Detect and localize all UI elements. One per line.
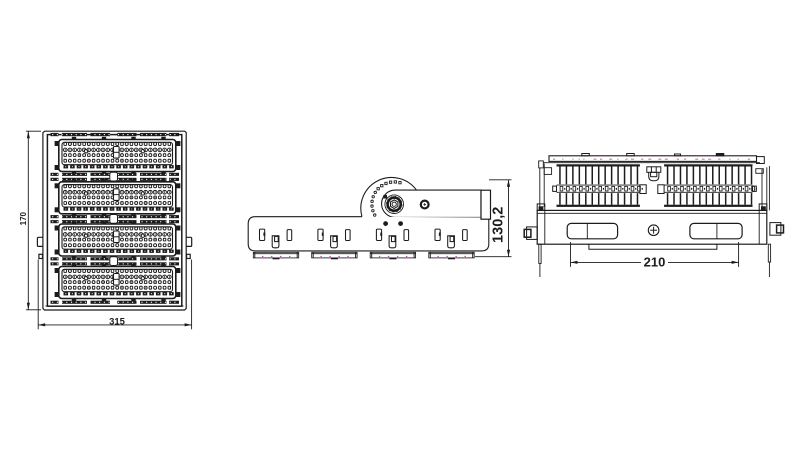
svg-text:170: 170: [19, 211, 28, 225]
svg-text:130,2: 130,2: [490, 207, 506, 243]
svg-text:210: 210: [644, 254, 666, 269]
svg-text:315: 315: [109, 316, 126, 327]
